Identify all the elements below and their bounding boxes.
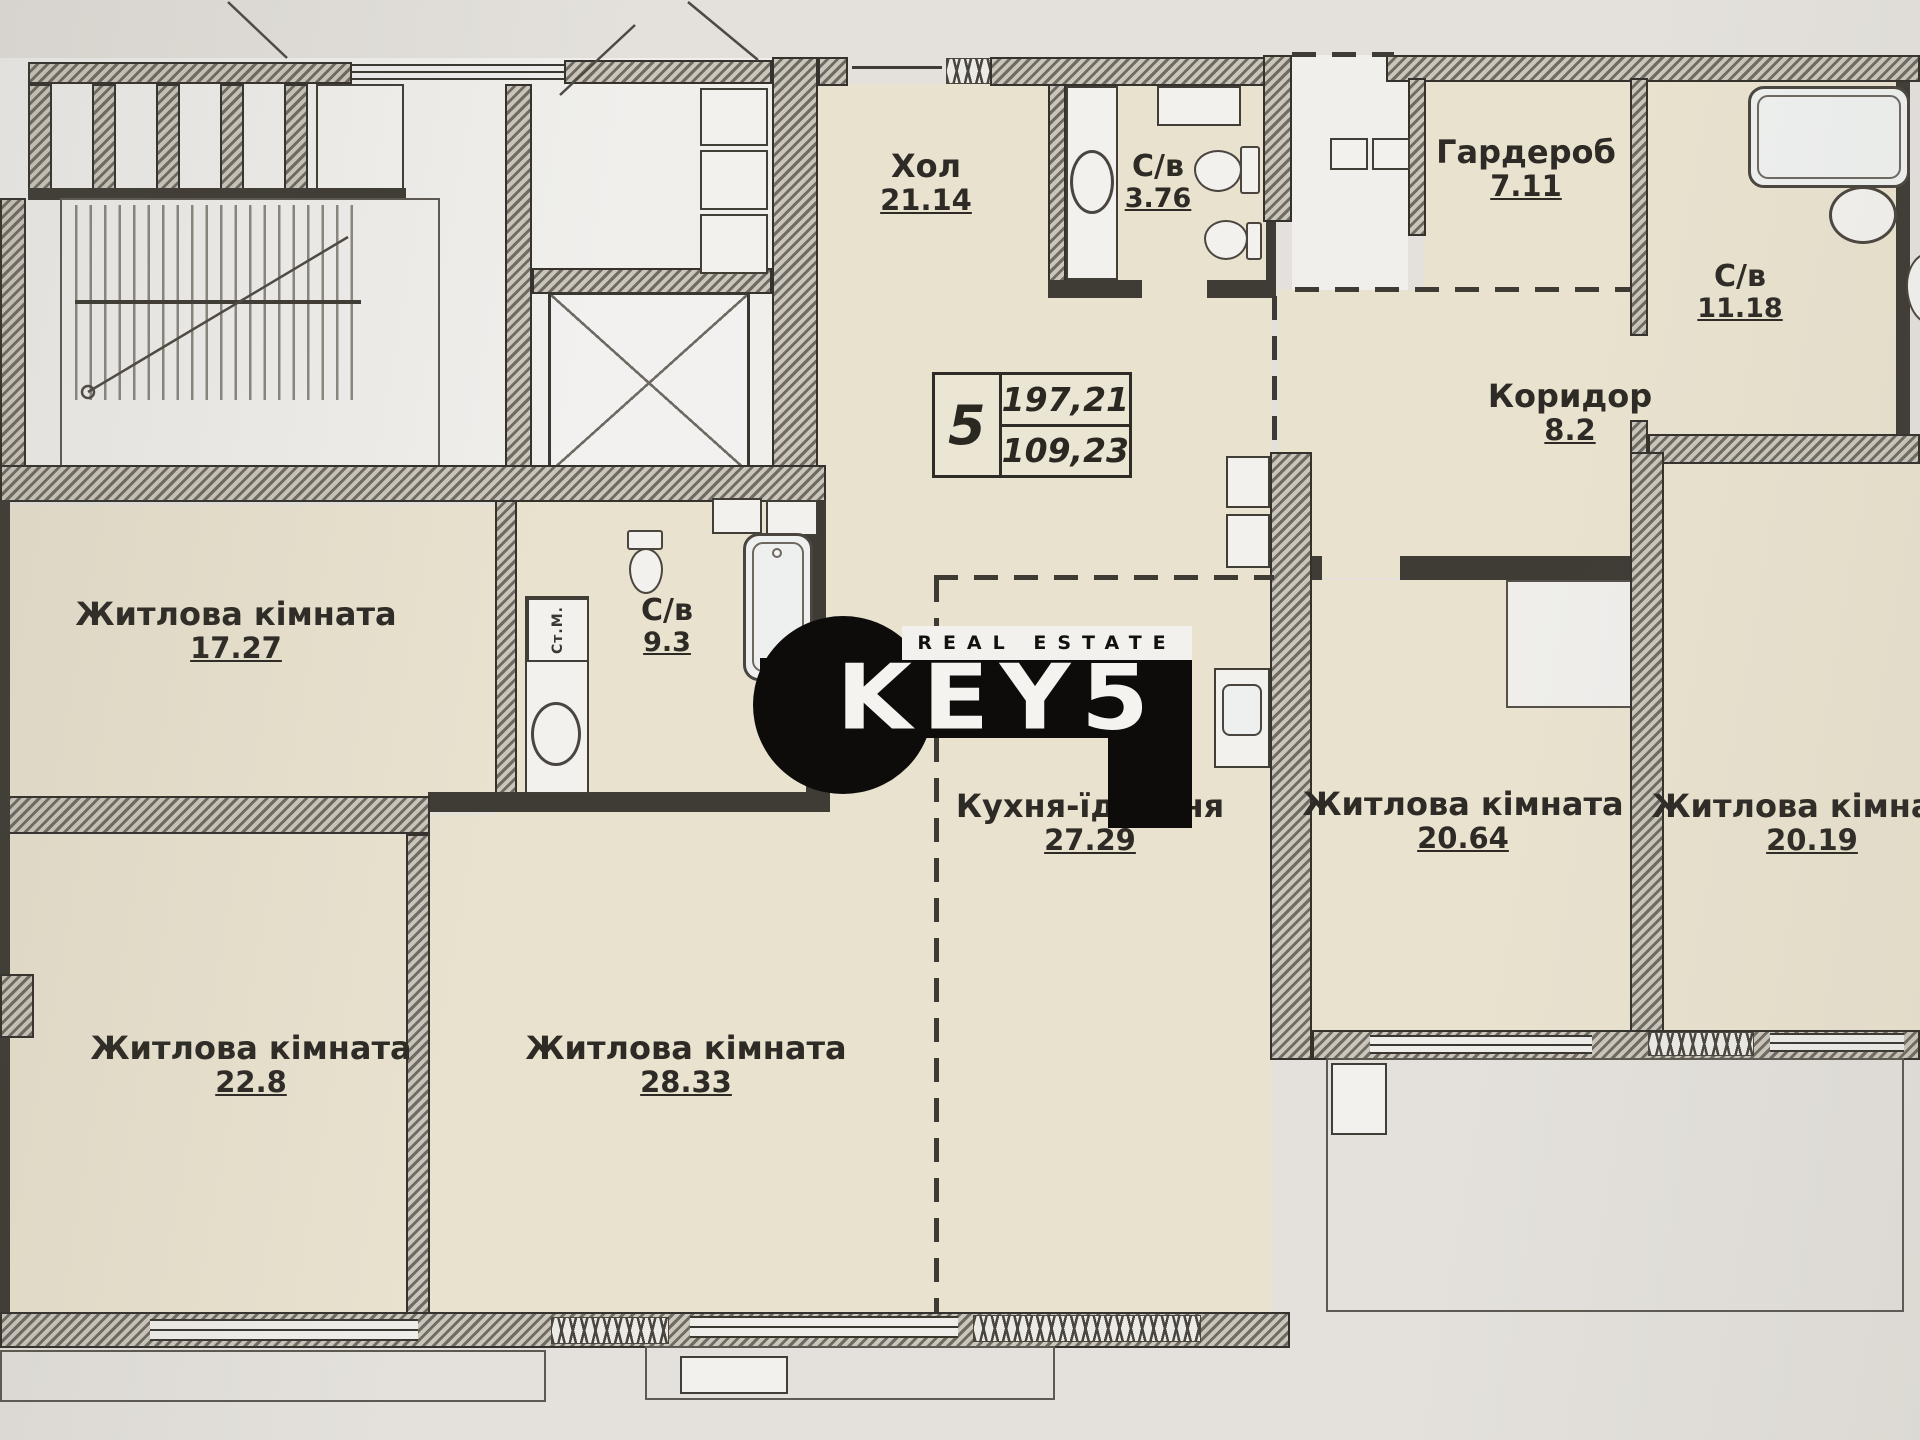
room-area: 22.8 (90, 1066, 411, 1099)
wall-segment (28, 62, 352, 84)
stairs-lower-flight (75, 304, 361, 400)
room-name: Житлова кімната (1651, 788, 1920, 824)
room-living-2019 (1648, 464, 1920, 1032)
room-area: 20.19 (1651, 824, 1920, 857)
wall-post (156, 84, 180, 190)
partition-wall (1048, 280, 1142, 298)
balcony-rail (0, 1350, 546, 1402)
dashed-line (1272, 296, 1277, 452)
window-symbol (1770, 1033, 1904, 1052)
window-symbol (150, 1319, 418, 1341)
wall-segment (0, 974, 34, 1038)
duct-shaft (700, 214, 768, 274)
room-label-living-2019: Житлова кімната 20.19 (1651, 788, 1920, 858)
room-label-living-2064: Житлова кімната 20.64 (1302, 786, 1623, 856)
room-label-wardrobe: Гардероб 7.11 (1436, 134, 1616, 204)
keys-logo-wordmark: KEY5 (788, 661, 1208, 735)
sink-icon (1070, 150, 1114, 214)
insulation-mark (551, 1317, 669, 1344)
toilet-tank-icon (1240, 146, 1260, 194)
room-name: Гардероб (1436, 134, 1616, 170)
unit-number: 5 (935, 375, 1002, 475)
keys-logo-square (1108, 738, 1192, 828)
balcony-unit (1331, 1063, 1387, 1135)
partition-wall (428, 792, 830, 812)
insulation-mark (1648, 1032, 1754, 1056)
window-symbol (1370, 1035, 1592, 1054)
room-area: 9.3 (641, 628, 693, 659)
room-label-living-228: Житлова кімната 22.8 (90, 1030, 411, 1100)
duct-shaft (1372, 138, 1410, 170)
partition-wall (1207, 280, 1269, 298)
window-symbol (690, 1316, 958, 1338)
room-area: 21.14 (880, 184, 972, 217)
insulation-mark (946, 58, 992, 84)
room-area: 8.2 (1488, 414, 1652, 447)
room-name: С/в (1697, 260, 1782, 294)
room-area: 7.11 (1436, 170, 1616, 203)
wall-segment (0, 465, 826, 502)
wall-segment (1263, 55, 1292, 222)
wall-segment (1630, 78, 1648, 336)
room-label-living-2833: Житлова кімната 28.33 (525, 1030, 846, 1100)
duct-shaft (700, 150, 768, 210)
room-name: Житлова кімната (1302, 786, 1623, 822)
room-area: 20.64 (1302, 822, 1623, 855)
stairs-upper-flight (75, 205, 361, 300)
duct-shaft (712, 498, 762, 534)
room-area: 17.27 (75, 632, 396, 665)
window-symbol (352, 64, 564, 80)
room-area: 11.18 (1697, 294, 1782, 325)
washing-machine-label: Ст.М. (527, 598, 589, 662)
wall-segment (0, 198, 26, 470)
landing-area (1292, 55, 1408, 290)
room-label-bath-93: С/в 9.3 (641, 594, 693, 659)
bidet-tank-icon (1246, 222, 1262, 260)
room-area: 3.76 (1125, 184, 1192, 215)
sink-icon (531, 702, 581, 766)
balcony-rail (1326, 1058, 1904, 1312)
wall-post (28, 84, 52, 190)
structural-niche (1506, 580, 1632, 708)
wall-segment (495, 500, 517, 812)
room-label-living-1727: Житлова кімната 17.27 (75, 596, 396, 666)
partition-wall (0, 500, 10, 1316)
entry-door-leaf (852, 66, 942, 69)
room-name: Хол (880, 148, 972, 184)
partition-wall (1400, 556, 1632, 580)
toilet-tank-icon (627, 530, 663, 550)
room-name: С/в (641, 594, 693, 628)
wall-post (220, 84, 244, 190)
room-name: Житлова кімната (75, 596, 396, 632)
wall-segment (990, 57, 1290, 86)
shower-tray (1157, 86, 1241, 126)
unit-living-area: 109,23 (1002, 427, 1129, 476)
balcony-unit (680, 1356, 788, 1394)
room-label-bath-376: С/в 3.76 (1125, 150, 1192, 215)
partition-wall (1266, 222, 1276, 298)
room-name: Житлова кімната (90, 1030, 411, 1066)
room-label-hall: Хол 21.14 (880, 148, 972, 218)
elevator-shaft (548, 292, 750, 474)
dashed-partition (1295, 287, 1631, 292)
dashed-line (1292, 52, 1394, 57)
wall-segment (1408, 78, 1426, 236)
utility-cell (316, 84, 404, 190)
duct-shaft (700, 88, 768, 146)
duct-shaft (1226, 456, 1270, 508)
room-name: Коридор (1488, 378, 1652, 414)
kitchen-sink-basin (1222, 684, 1262, 736)
wall-segment (1648, 434, 1920, 464)
wall-segment (564, 60, 772, 84)
room-label-bath-1118: С/в 11.18 (1697, 260, 1782, 325)
wall-post (92, 84, 116, 190)
room-name: Житлова кімната (525, 1030, 846, 1066)
wall-segment (772, 57, 818, 502)
dashed-kitchen-boundary (934, 575, 1274, 580)
partition-wall (1312, 556, 1322, 580)
room-name: С/в (1125, 150, 1192, 184)
bathtub-icon (1748, 86, 1910, 188)
room-living-28-sliver (428, 815, 500, 1314)
wall-segment (1630, 452, 1664, 1034)
room-area: 27.29 (956, 824, 1224, 857)
wall-post (284, 84, 308, 190)
duct-shaft (1330, 138, 1368, 170)
duct-shaft (766, 500, 818, 536)
duct-shaft (1226, 514, 1270, 568)
wall-segment (818, 57, 848, 86)
floor-plan: Ст.М. 5 197,21 109,23 Хол (0, 0, 1920, 1440)
unit-total-area: 197,21 (1002, 375, 1129, 427)
unit-info-box: 5 197,21 109,23 (932, 372, 1132, 478)
room-area: 28.33 (525, 1066, 846, 1099)
room-label-corridor: Коридор 8.2 (1488, 378, 1652, 448)
wall-segment (0, 796, 430, 834)
wall-segment (1386, 55, 1920, 82)
sink-icon (1829, 186, 1897, 244)
bathtub-drain (772, 548, 782, 558)
wall-segment (505, 84, 532, 468)
insulation-mark (973, 1315, 1201, 1342)
room-kitchen-block (495, 497, 1272, 1314)
wall-segment (1048, 84, 1066, 284)
wall-segment (1270, 452, 1312, 1060)
